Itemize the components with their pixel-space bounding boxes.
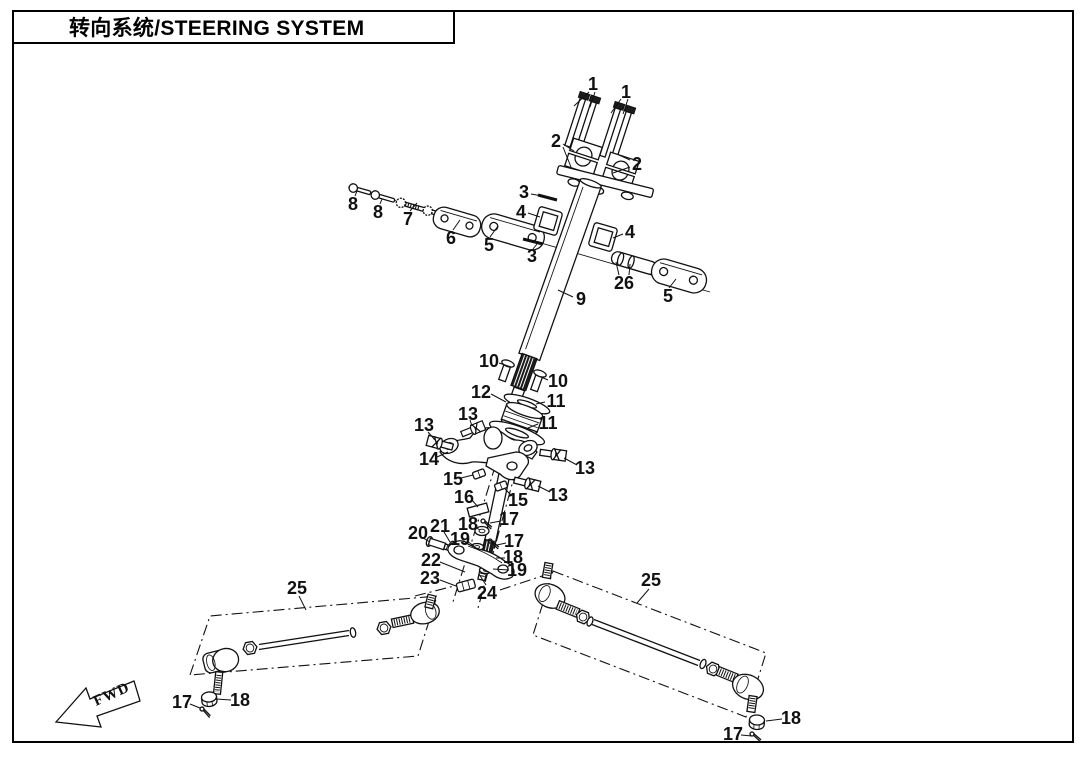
callout-leader-18-35 [766,719,782,721]
callout-13-21: 13 [458,404,478,424]
callout-7-11: 7 [403,209,413,229]
part-6-bushing [431,205,483,240]
part-26-sleeve [610,250,658,275]
callout-18-35: 18 [781,708,801,728]
tie-rod-right-boundary [533,571,766,717]
callout-4-6: 4 [516,202,526,222]
callout-11-18: 11 [538,413,557,433]
callout-leader-23-41 [440,580,456,586]
part-1-stud-pair-right [598,102,636,162]
callout-18-34: 18 [230,690,250,710]
callout-9-14: 9 [576,289,586,309]
callout-17-28: 17 [499,509,519,529]
part-15-clip-left [472,469,486,480]
callout-12-19: 12 [471,382,491,402]
callout-16-27: 16 [454,487,474,507]
part-18-nut-right [749,714,765,730]
callout-25-43: 25 [287,578,307,598]
callout-3-5: 3 [527,246,537,266]
part-18-nut-left [201,691,217,707]
callout-leader-18-34 [216,699,231,700]
callout-11-17: 11 [546,391,565,411]
tie-rod-left-rod [259,631,349,650]
callout-8-12: 8 [348,194,358,214]
sheet-title: 转向系统/STEERING SYSTEM [69,12,364,42]
part-17-cotter-right [749,732,762,742]
title-block: 转向系统/STEERING SYSTEM [12,10,455,44]
callout-leader-25-44 [637,589,649,603]
part-5-bushing-right [649,256,710,296]
callout-2-2: 2 [551,131,561,151]
parts-catalog-page: { "title": { "text": "转向系统/STEERING SYST… [0,0,1090,760]
callout-20-38: 20 [408,523,428,543]
tie-rod-right-rod [592,620,700,666]
callout-1-0: 1 [588,74,598,94]
callout-15-26: 15 [508,490,528,510]
callout-4-7: 4 [625,222,635,242]
callout-17-30: 17 [172,692,192,712]
part-13-bolt-3 [539,447,566,462]
callout-14-24: 14 [419,449,439,469]
callout-10-16: 10 [548,371,568,391]
tie-rod-left-nut [376,621,392,635]
callout-10-15: 10 [479,351,499,371]
callout-6-10: 6 [446,228,456,248]
fwd-direction-marker: FWD [56,680,140,727]
callout-1-1: 1 [621,82,631,102]
callout-8-13: 8 [373,202,383,222]
callout-13-22: 13 [575,458,595,478]
callout-13-23: 13 [548,485,568,505]
callout-22-40: 22 [421,550,441,570]
callout-19-36: 19 [450,529,470,549]
part-17-cotter-left [198,707,212,718]
callout-15-25: 15 [443,469,463,489]
callout-17-31: 17 [723,724,743,744]
callout-13-20: 13 [414,415,434,435]
callout-leader-12-19 [491,394,506,402]
callout-24-42: 24 [477,583,497,603]
callout-25-44: 25 [641,570,661,590]
tie-rod-left-assembly [190,594,442,694]
callout-5-8: 5 [484,235,494,255]
callout-5-9: 5 [663,286,673,306]
part-4-clamp-block-right [588,222,618,252]
callout-leader-22-40 [440,562,465,572]
callout-23-41: 23 [420,568,440,588]
tie-rod-left-jam-nut [242,641,258,655]
steering-system-exploded-diagram: FWD 112233445567889101011111213131313141… [0,0,1090,760]
callout-2-3: 2 [632,154,642,174]
callout-19-37: 19 [507,560,527,580]
callout-3-4: 3 [519,182,529,202]
callout-21-39: 21 [430,516,450,536]
callout-26-45: 26 [614,273,634,293]
